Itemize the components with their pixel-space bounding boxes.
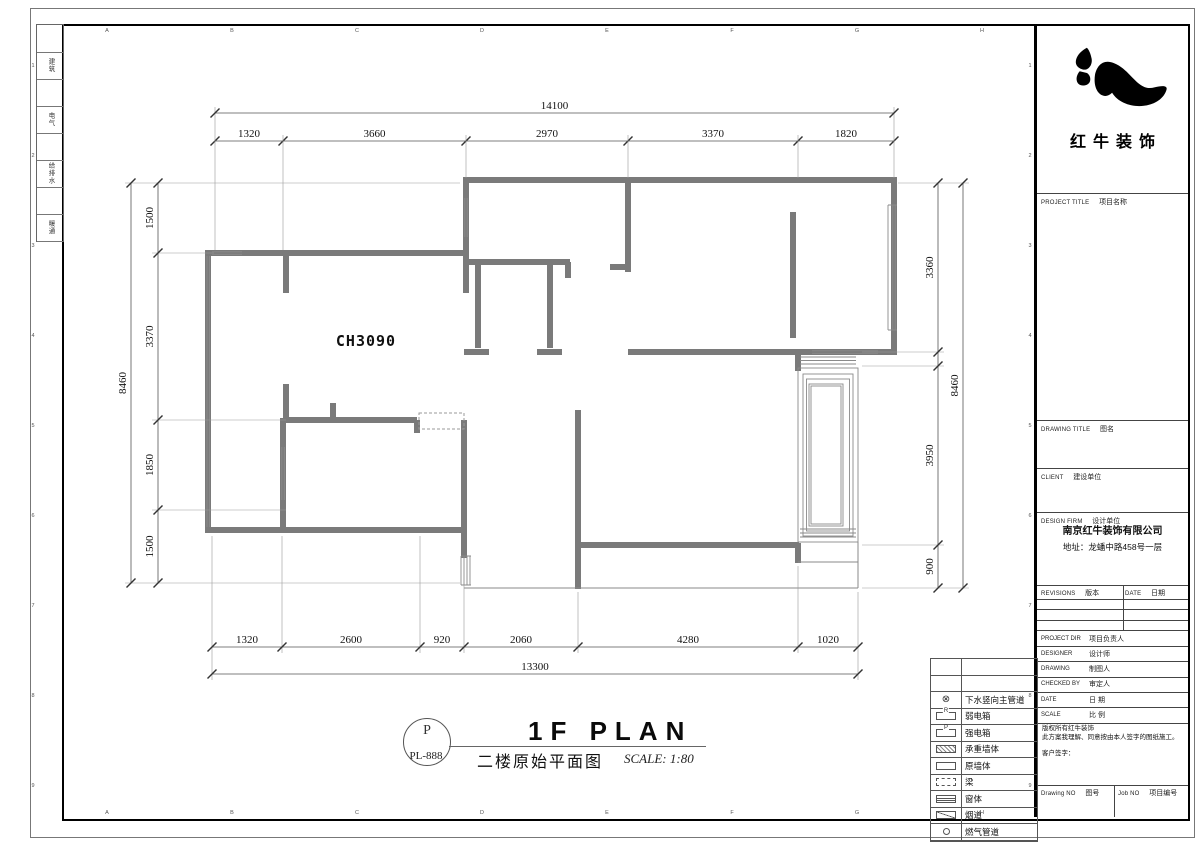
legend-row: 燃气管道	[931, 824, 1037, 841]
svg-text:14100: 14100	[541, 100, 569, 112]
legend-label: 原墙体	[962, 760, 991, 772]
svg-text:2970: 2970	[536, 128, 559, 140]
svg-text:E: E	[605, 810, 609, 816]
svg-text:7: 7	[1028, 603, 1031, 609]
svg-text:1500: 1500	[144, 207, 156, 230]
svg-text:1: 1	[1028, 63, 1031, 69]
room-height-label: CH3090	[336, 332, 396, 350]
legend-label: 强电箱	[962, 727, 991, 739]
svg-text:B: B	[230, 810, 234, 816]
svg-text:2: 2	[1028, 153, 1031, 159]
legend-row: 承重墙体	[931, 742, 1037, 759]
svg-text:1500: 1500	[144, 535, 156, 558]
letter-box-icon: P	[936, 729, 956, 737]
revisions-header: REVISIONS 版本	[1041, 588, 1099, 598]
svg-text:B: B	[230, 28, 234, 34]
job-no-header: Job NO 项目编号	[1118, 788, 1177, 798]
legend-row	[931, 659, 1037, 676]
title-block: 红牛装饰 PROJECT TITLE 项目名称 DRAWING TITLE 图名…	[1037, 24, 1188, 817]
legend-row: 梁	[931, 775, 1037, 792]
svg-text:1: 1	[31, 63, 34, 69]
legend-row	[931, 676, 1037, 693]
svg-text:D: D	[480, 810, 484, 816]
legend-row: ⊗下水竖向主管道	[931, 692, 1037, 709]
walls	[205, 180, 894, 589]
title-block-row: DESIGNER设计师	[1037, 646, 1188, 662]
svg-text:2060: 2060	[510, 634, 533, 646]
legend-row: 窗体	[931, 791, 1037, 808]
drawing-sheet: 建筑电气给排水暖通 CH3090 13203660297033701820141…	[0, 0, 1200, 844]
legend-label: 下水竖向主管道	[962, 694, 1025, 706]
plain-box-icon	[936, 762, 956, 770]
svg-text:3: 3	[31, 243, 34, 249]
title-block-row: SCALE比 例	[1037, 708, 1188, 724]
project-title-header: PROJECT TITLE 项目名称	[1041, 197, 1127, 207]
title-block-row: CHECKED BY审定人	[1037, 677, 1188, 693]
plan-title-cn: 二楼原始平面图	[477, 748, 603, 772]
svg-text:900: 900	[924, 558, 936, 575]
legend-label: 燃气管道	[962, 826, 999, 838]
hatch-box-icon	[936, 745, 956, 753]
legend-label: 承重墙体	[962, 743, 999, 755]
plan-title-en: 1F PLAN	[528, 716, 692, 747]
revisions-date-header: DATE 日期	[1125, 588, 1165, 598]
plan-scale: SCALE: 1:80	[624, 751, 694, 767]
svg-text:G: G	[855, 28, 859, 34]
svg-text:G: G	[855, 810, 859, 816]
drawing-no-header: Drawing NO 图号	[1041, 788, 1099, 798]
dashed-box-icon	[936, 778, 956, 786]
svg-text:A: A	[105, 810, 109, 816]
legend-label: 梁	[962, 776, 974, 788]
svg-text:9: 9	[31, 783, 34, 789]
svg-text:3950: 3950	[924, 444, 936, 467]
dot-icon	[943, 828, 950, 835]
svg-text:13300: 13300	[521, 661, 549, 673]
company-name: 红牛装饰	[1037, 128, 1188, 152]
svg-text:6: 6	[1028, 513, 1031, 519]
svg-text:A: A	[105, 28, 109, 34]
svg-text:920: 920	[434, 634, 451, 646]
bull-logo-icon	[1054, 46, 1172, 118]
plan-code-letter: P	[404, 723, 450, 739]
svg-text:5: 5	[31, 423, 34, 429]
copyright-notes: 版权所有红牛装饰 此方案我理解、同意按由本人签字的图纸施工。 客户签字：	[1042, 724, 1182, 758]
legend-row: P强电箱	[931, 725, 1037, 742]
svg-text:3370: 3370	[144, 325, 156, 348]
svg-text:E: E	[605, 28, 609, 34]
svg-text:4280: 4280	[677, 634, 700, 646]
client-header: CLIENT 建设单位	[1041, 472, 1101, 482]
legend-label: 窗体	[962, 793, 982, 805]
legend-row: 烟道	[931, 808, 1037, 825]
svg-text:1820: 1820	[835, 128, 858, 140]
svg-text:C: C	[355, 28, 359, 34]
svg-text:4: 4	[31, 333, 34, 339]
drawing-title-header: DRAWING TITLE 图名	[1041, 424, 1114, 434]
svg-text:3370: 3370	[702, 128, 725, 140]
design-firm-name: 南京红牛装饰有限公司	[1037, 522, 1188, 537]
svg-text:1020: 1020	[817, 634, 840, 646]
svg-text:3: 3	[1028, 243, 1031, 249]
plan-code-number: PL-888	[398, 750, 454, 762]
legend-row: 原墙体	[931, 758, 1037, 775]
legend-row: R弱电箱	[931, 709, 1037, 726]
title-block-row: PROJECT DIR项目负责人	[1037, 631, 1188, 647]
svg-text:2: 2	[31, 153, 34, 159]
title-block-row: DATE日 期	[1037, 692, 1188, 708]
svg-text:3660: 3660	[364, 128, 387, 140]
svg-text:C: C	[355, 810, 359, 816]
letter-box-icon: R	[936, 712, 956, 720]
legend-label: 烟道	[962, 809, 982, 821]
svg-text:3360: 3360	[924, 256, 936, 279]
svg-text:4: 4	[1028, 333, 1031, 339]
svg-text:7: 7	[31, 603, 34, 609]
window-box-icon	[936, 795, 956, 803]
svg-text:H: H	[980, 28, 984, 34]
legend-table: ⊗下水竖向主管道R弱电箱P强电箱承重墙体原墙体梁窗体烟道燃气管道	[930, 658, 1038, 842]
svg-text:6: 6	[31, 513, 34, 519]
title-block-row: DRAWING制图人	[1037, 662, 1188, 678]
svg-text:5: 5	[1028, 423, 1031, 429]
svg-text:1850: 1850	[144, 454, 156, 477]
svg-text:1320: 1320	[238, 128, 261, 140]
svg-text:F: F	[730, 810, 734, 816]
svg-text:8460: 8460	[949, 374, 961, 397]
grid-references: AABBCCDDEEFFGGHH112233445566778899	[31, 28, 1031, 816]
svg-text:1320: 1320	[236, 634, 259, 646]
svg-text:8: 8	[31, 693, 34, 699]
svg-text:D: D	[480, 28, 484, 34]
design-firm-address: 地址：龙蟠中路458号一层	[1037, 541, 1188, 553]
drain-icon: ⊗	[942, 696, 950, 704]
beam-dashed	[419, 413, 464, 429]
legend-label: 弱电箱	[962, 710, 991, 722]
svg-text:F: F	[730, 28, 734, 34]
diag-box-icon	[936, 811, 956, 819]
company-logo: 红牛装饰	[1037, 46, 1188, 152]
svg-text:2600: 2600	[340, 634, 363, 646]
svg-text:8460: 8460	[117, 372, 129, 395]
